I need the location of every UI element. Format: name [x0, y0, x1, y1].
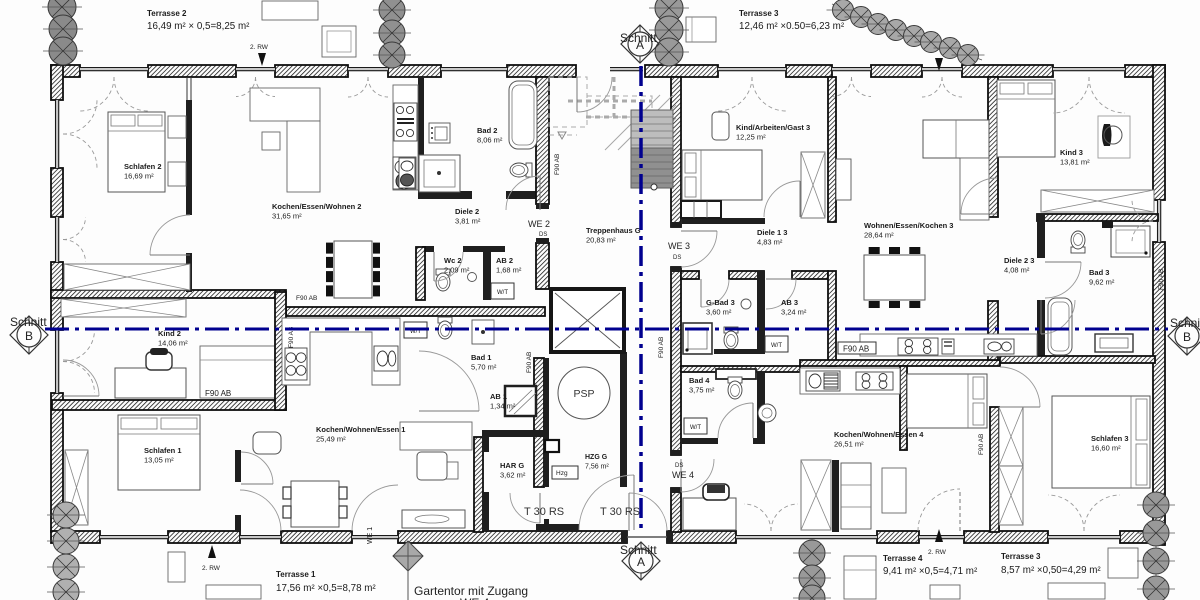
svg-text:HZG G: HZG G: [585, 454, 608, 461]
svg-text:20,83 m²: 20,83 m²: [586, 236, 616, 245]
svg-text:Wohnen/Essen/Kochen 3: Wohnen/Essen/Kochen 3: [864, 221, 953, 230]
svg-text:4,08 m²: 4,08 m²: [1004, 266, 1030, 275]
svg-text:B: B: [25, 329, 33, 343]
svg-text:3,62 m²: 3,62 m²: [500, 471, 526, 480]
svg-text:Schlafen 1: Schlafen 1: [144, 446, 182, 455]
svg-text:Bad 3: Bad 3: [1089, 268, 1109, 277]
svg-text:Schnitt: Schnitt: [620, 543, 657, 557]
svg-text:W/T: W/T: [497, 290, 508, 296]
svg-text:Treppenhaus G: Treppenhaus G: [586, 226, 641, 235]
svg-text:Diele 1 3: Diele 1 3: [757, 228, 787, 237]
svg-text:Bad 4: Bad 4: [689, 376, 710, 385]
svg-text:F90 AB: F90 AB: [658, 337, 665, 358]
svg-text:4,83 m²: 4,83 m²: [757, 238, 783, 247]
svg-text:13,05 m²: 13,05 m²: [144, 456, 174, 465]
svg-text:W/T: W/T: [771, 343, 782, 349]
svg-text:8,06 m²: 8,06 m²: [477, 136, 503, 145]
svg-text:HAR G: HAR G: [500, 461, 524, 470]
svg-text:Wc 2: Wc 2: [444, 256, 462, 265]
svg-text:F90 AB: F90 AB: [205, 389, 231, 398]
svg-text:2. RW: 2. RW: [928, 549, 947, 556]
svg-text:G-Bad 3: G-Bad 3: [706, 298, 735, 307]
svg-text:AB 2: AB 2: [496, 256, 513, 265]
svg-text:Schnitt: Schnitt: [10, 315, 47, 329]
svg-text:DS: DS: [673, 255, 681, 261]
svg-text:14,06 m²: 14,06 m²: [158, 339, 188, 348]
svg-text:AB 1: AB 1: [490, 392, 507, 401]
svg-text:Schlafen 2: Schlafen 2: [124, 162, 162, 171]
svg-text:1,68 m²: 1,68 m²: [496, 266, 522, 275]
svg-text:3,24 m²: 3,24 m²: [781, 308, 807, 317]
svg-text:Kochen/Wohnen/Essen 4: Kochen/Wohnen/Essen 4: [834, 430, 924, 439]
svg-text:17,56 m² ×0,5=8,78 m²: 17,56 m² ×0,5=8,78 m²: [276, 583, 376, 594]
svg-text:3,81 m²: 3,81 m²: [455, 217, 481, 226]
svg-text:Bad 2: Bad 2: [477, 126, 497, 135]
svg-text:F90 AB: F90 AB: [554, 154, 561, 175]
svg-text:Bad 1: Bad 1: [471, 353, 491, 362]
svg-text:W/T: W/T: [690, 425, 701, 431]
svg-text:3,60 m²: 3,60 m²: [706, 308, 732, 317]
svg-text:Terrasse 1: Terrasse 1: [276, 570, 316, 579]
svg-text:1,34 m²: 1,34 m²: [490, 402, 516, 411]
svg-text:Kind/Arbeiten/Gast 3: Kind/Arbeiten/Gast 3: [736, 123, 810, 132]
svg-text:28,64 m²: 28,64 m²: [864, 231, 894, 240]
svg-text:Schnitt: Schnitt: [620, 31, 657, 45]
svg-text:2. RW: 2. RW: [202, 565, 221, 572]
svg-text:16,60 m²: 16,60 m²: [1091, 444, 1121, 453]
svg-text:9,62 m²: 9,62 m²: [1089, 278, 1115, 287]
svg-text:9,41 m² ×0,5=4,71 m²: 9,41 m² ×0,5=4,71 m²: [883, 566, 978, 577]
svg-text:WE 1: WE 1: [367, 527, 374, 544]
svg-text:Diele 2: Diele 2: [455, 207, 479, 216]
svg-text:12,46 m² ×0.50=6,23 m²: 12,46 m² ×0.50=6,23 m²: [739, 21, 845, 32]
svg-text:WE 3: WE 3: [668, 241, 690, 251]
svg-text:16,49 m² × 0,5=8,25 m²: 16,49 m² × 0,5=8,25 m²: [147, 21, 250, 32]
svg-text:Terrasse 3: Terrasse 3: [739, 9, 779, 18]
svg-text:F90 AB: F90 AB: [296, 295, 317, 302]
svg-text:2,09 m²: 2,09 m²: [444, 266, 470, 275]
svg-text:F90 AB: F90 AB: [526, 352, 533, 373]
svg-text:16,69 m²: 16,69 m²: [124, 172, 154, 181]
svg-text:zur WE 4: zur WE 4: [440, 596, 490, 600]
svg-text:A: A: [637, 555, 645, 569]
svg-text:2. RW: 2. RW: [250, 44, 269, 51]
svg-text:F90 AB: F90 AB: [843, 345, 869, 354]
svg-text:F90 AB: F90 AB: [978, 434, 985, 455]
svg-text:8,57 m² ×0,50=4,29 m²: 8,57 m² ×0,50=4,29 m²: [1001, 565, 1101, 576]
svg-text:Kochen/Essen/Wohnen 2: Kochen/Essen/Wohnen 2: [272, 202, 361, 211]
svg-text:WE 2: WE 2: [528, 219, 550, 229]
svg-text:Terrasse 3: Terrasse 3: [1001, 552, 1041, 561]
svg-text:12,25 m²: 12,25 m²: [736, 133, 766, 142]
svg-text:F90 AB: F90 AB: [1158, 269, 1165, 290]
svg-text:T 30 RS: T 30 RS: [524, 506, 564, 518]
svg-text:AB 3: AB 3: [781, 298, 798, 307]
svg-text:7,56 m²: 7,56 m²: [585, 464, 609, 471]
svg-text:WE 4: WE 4: [672, 470, 694, 480]
svg-text:T 30 RS: T 30 RS: [600, 506, 640, 518]
svg-text:Hzg: Hzg: [556, 470, 568, 477]
svg-text:31,65 m²: 31,65 m²: [272, 212, 302, 221]
svg-text:Terrasse 4: Terrasse 4: [883, 554, 923, 563]
svg-text:3,75 m²: 3,75 m²: [689, 386, 715, 395]
svg-text:DS: DS: [539, 232, 547, 238]
svg-text:DS: DS: [675, 463, 683, 469]
svg-text:Diele 2 3: Diele 2 3: [1004, 256, 1034, 265]
svg-text:Kochen/Wohnen/Essen 1: Kochen/Wohnen/Essen 1: [316, 425, 405, 434]
svg-text:5,70 m²: 5,70 m²: [471, 363, 497, 372]
svg-text:B: B: [1183, 330, 1191, 344]
svg-text:25,49 m²: 25,49 m²: [316, 435, 346, 444]
svg-text:Schnitt: Schnitt: [1170, 316, 1200, 330]
svg-text:26,51 m²: 26,51 m²: [834, 440, 864, 449]
svg-text:Schlafen 3: Schlafen 3: [1091, 434, 1129, 443]
svg-text:13,81 m²: 13,81 m²: [1060, 158, 1090, 167]
svg-text:Kind 3: Kind 3: [1060, 148, 1083, 157]
svg-text:PSP: PSP: [573, 388, 594, 400]
svg-text:Terrasse 2: Terrasse 2: [147, 9, 187, 18]
